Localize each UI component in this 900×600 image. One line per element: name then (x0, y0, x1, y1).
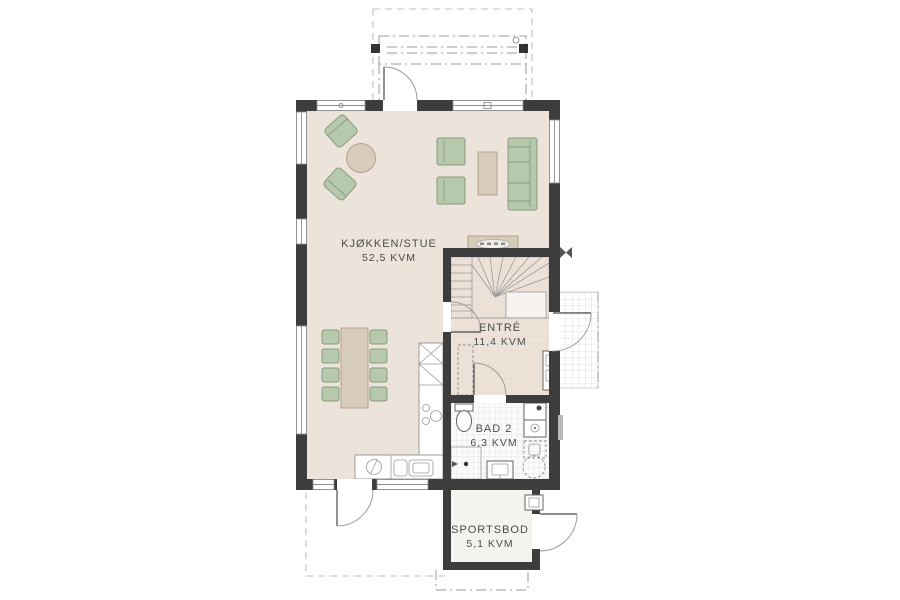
downpipe-icon (513, 37, 519, 43)
room-area-kitchen-living: 52,5 KVM (362, 252, 416, 264)
terrace-door (383, 67, 417, 111)
porch-decking (559, 292, 598, 388)
room-area-hallway: 11,4 KVM (473, 336, 526, 348)
dining-chair (322, 368, 339, 382)
floor-plan: KJØKKEN/STUE 52,5 KVM ENTRÉ 11,4 KVM BAD… (0, 0, 900, 600)
room-label-kitchen-living: KJØKKEN/STUE (341, 238, 437, 250)
bathroom-sink-icon (487, 461, 513, 479)
dining-chair (370, 387, 387, 401)
armchair (437, 177, 465, 204)
floor-plan-drawing: KJØKKEN/STUE 52,5 KVM ENTRÉ 11,4 KVM BAD… (0, 0, 900, 600)
storage-door (532, 514, 577, 551)
terrace-post (519, 44, 528, 53)
washing-machine-icon (524, 403, 546, 420)
dining-chair (322, 387, 339, 401)
storage-eaves-outline (436, 570, 528, 590)
dining-chair (370, 368, 387, 382)
wall-vent (558, 415, 563, 440)
entry-porch (559, 292, 598, 388)
upper-terrace-outline (371, 9, 532, 100)
dining-chair (322, 349, 339, 363)
room-label-bathroom: BAD 2 (476, 423, 513, 435)
wall (443, 490, 451, 570)
room-area-bathroom: 6,3 KVM (470, 437, 517, 449)
armchair (437, 138, 465, 165)
room-area-storage: 5,1 KVM (466, 538, 513, 550)
room-label-storage: SPORTSBOD (451, 524, 529, 536)
outdoor-tap-icon (560, 247, 572, 258)
room-label-hallway: ENTRÉ (479, 321, 521, 334)
wall (443, 248, 549, 257)
dining-chair (370, 330, 387, 344)
wall (443, 562, 540, 570)
dining-chair (370, 349, 387, 363)
dining-group (322, 328, 387, 408)
electrical-cabinet (525, 495, 543, 510)
sofa (508, 138, 537, 210)
wall (443, 248, 451, 479)
terrace-post (371, 44, 380, 53)
coffee-table (478, 152, 497, 195)
patio-door (337, 479, 373, 526)
lower-terrace-outline (306, 492, 446, 576)
dryer-icon (524, 420, 546, 437)
dining-table (341, 328, 368, 408)
dining-chair (322, 330, 339, 344)
toilet-icon (455, 404, 473, 432)
round-side-table (347, 144, 376, 173)
stair-landing (506, 292, 546, 318)
